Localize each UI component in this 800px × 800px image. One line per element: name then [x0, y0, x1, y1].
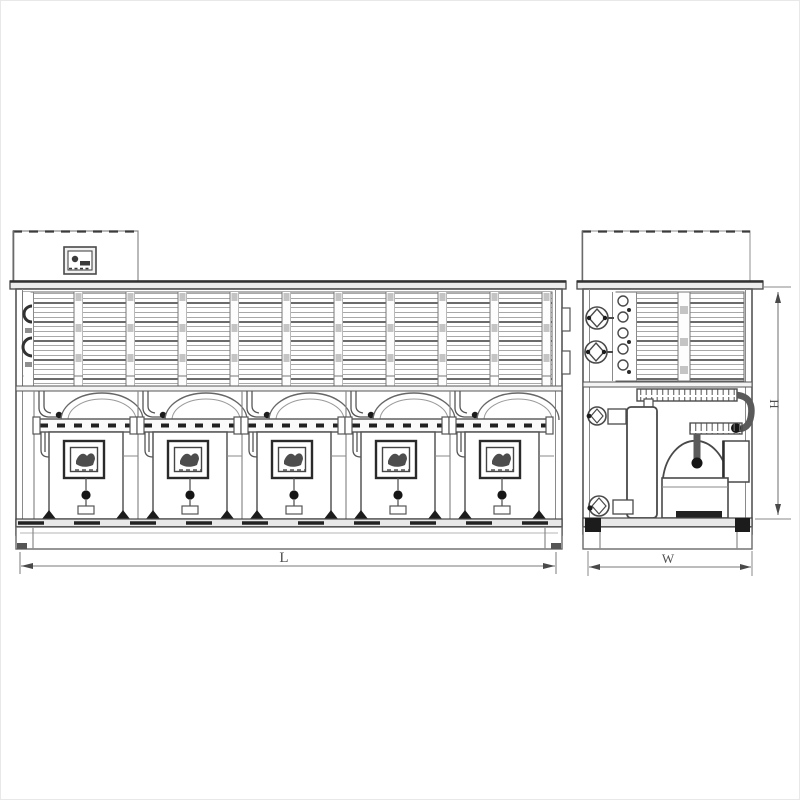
dimension-length: L [20, 550, 556, 574]
drawing-canvas: L [0, 0, 800, 800]
dimension-height: H [755, 287, 791, 519]
side-top-rail [577, 281, 763, 289]
side-top-box [582, 231, 750, 282]
coil-shelf [16, 386, 562, 391]
lifting-tab [562, 351, 570, 374]
front-base [16, 519, 562, 549]
ribbed-pipe [690, 423, 742, 434]
coil-return-bends-side [612, 292, 637, 381]
base-foot [735, 518, 750, 532]
base-foot [585, 518, 601, 532]
lifting-tab [562, 308, 570, 331]
coil-return-bends [23, 292, 34, 386]
base-foot [17, 543, 27, 549]
height-label: H [767, 399, 782, 408]
dimension-width: W [588, 551, 752, 576]
control-box-nameplate [64, 247, 96, 274]
base-foot [551, 543, 561, 549]
technical-drawing: L [0, 0, 800, 800]
side-coil-shelf [583, 382, 752, 387]
side-base [583, 518, 752, 549]
front-view: L [10, 231, 570, 574]
control-box [13, 231, 138, 282]
condenser-grid-front [23, 292, 570, 386]
front-top-rail [10, 281, 566, 289]
width-label: W [662, 551, 675, 566]
side-view: H W [577, 231, 791, 576]
bracket-panel [723, 441, 749, 482]
length-label: L [279, 550, 288, 566]
